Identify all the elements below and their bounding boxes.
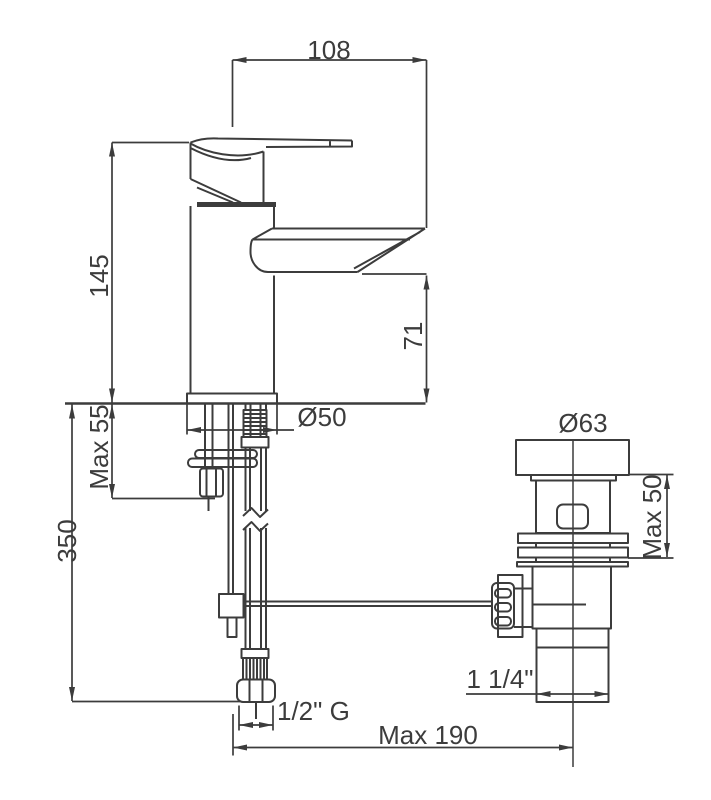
dim-max50-label: Max 50: [637, 474, 667, 559]
hose-corrugation-ridges: [247, 658, 265, 680]
hose-hex-nut: [237, 680, 275, 703]
dim-max55-label: Max 55: [84, 404, 114, 489]
lift-rod-tip: [228, 618, 237, 638]
dim-114-label: 1 1/4": [466, 664, 533, 694]
lift-rod: [229, 403, 234, 594]
faucet-outline: [187, 138, 425, 403]
faucet-handle: [191, 138, 353, 202]
dim-max190-label: Max 190: [378, 720, 478, 750]
hose-lines-lower: [246, 528, 267, 649]
fixing-nut: [200, 469, 223, 497]
hose-collar-bottom: [242, 649, 269, 658]
dim-12g-label: 1/2" G: [277, 696, 350, 726]
hose-thread-hatch: [244, 410, 267, 437]
under-deck-assembly: [188, 403, 275, 719]
dim-o63-label: Ø63: [558, 408, 607, 438]
faucet-spout: [251, 229, 426, 273]
mounting-washer-bottom: [188, 459, 257, 468]
dim-o50-label: Ø50: [297, 402, 346, 432]
faucet-base-flange: [187, 394, 277, 404]
rod-clamp: [219, 594, 244, 618]
hose-collar-top: [242, 437, 269, 448]
dim-71-label: 71: [398, 322, 428, 351]
fixing-nut-facets: [207, 469, 217, 512]
technical-drawing-canvas: 108 145 71 Max 55 350 Ø50 Ø63 Max 50 1 1…: [0, 0, 711, 800]
popup-rod: [244, 602, 587, 607]
technical-drawing-page: 108 145 71 Max 55 350 Ø50 Ø63 Max 50 1 1…: [0, 0, 711, 800]
waste-mid-body: [533, 567, 612, 629]
dim-350-label: 350: [52, 519, 82, 562]
dim-145-label: 145: [84, 254, 114, 297]
dim-108-label: 108: [307, 35, 350, 65]
hose-hex-nut-facets: [250, 680, 263, 720]
